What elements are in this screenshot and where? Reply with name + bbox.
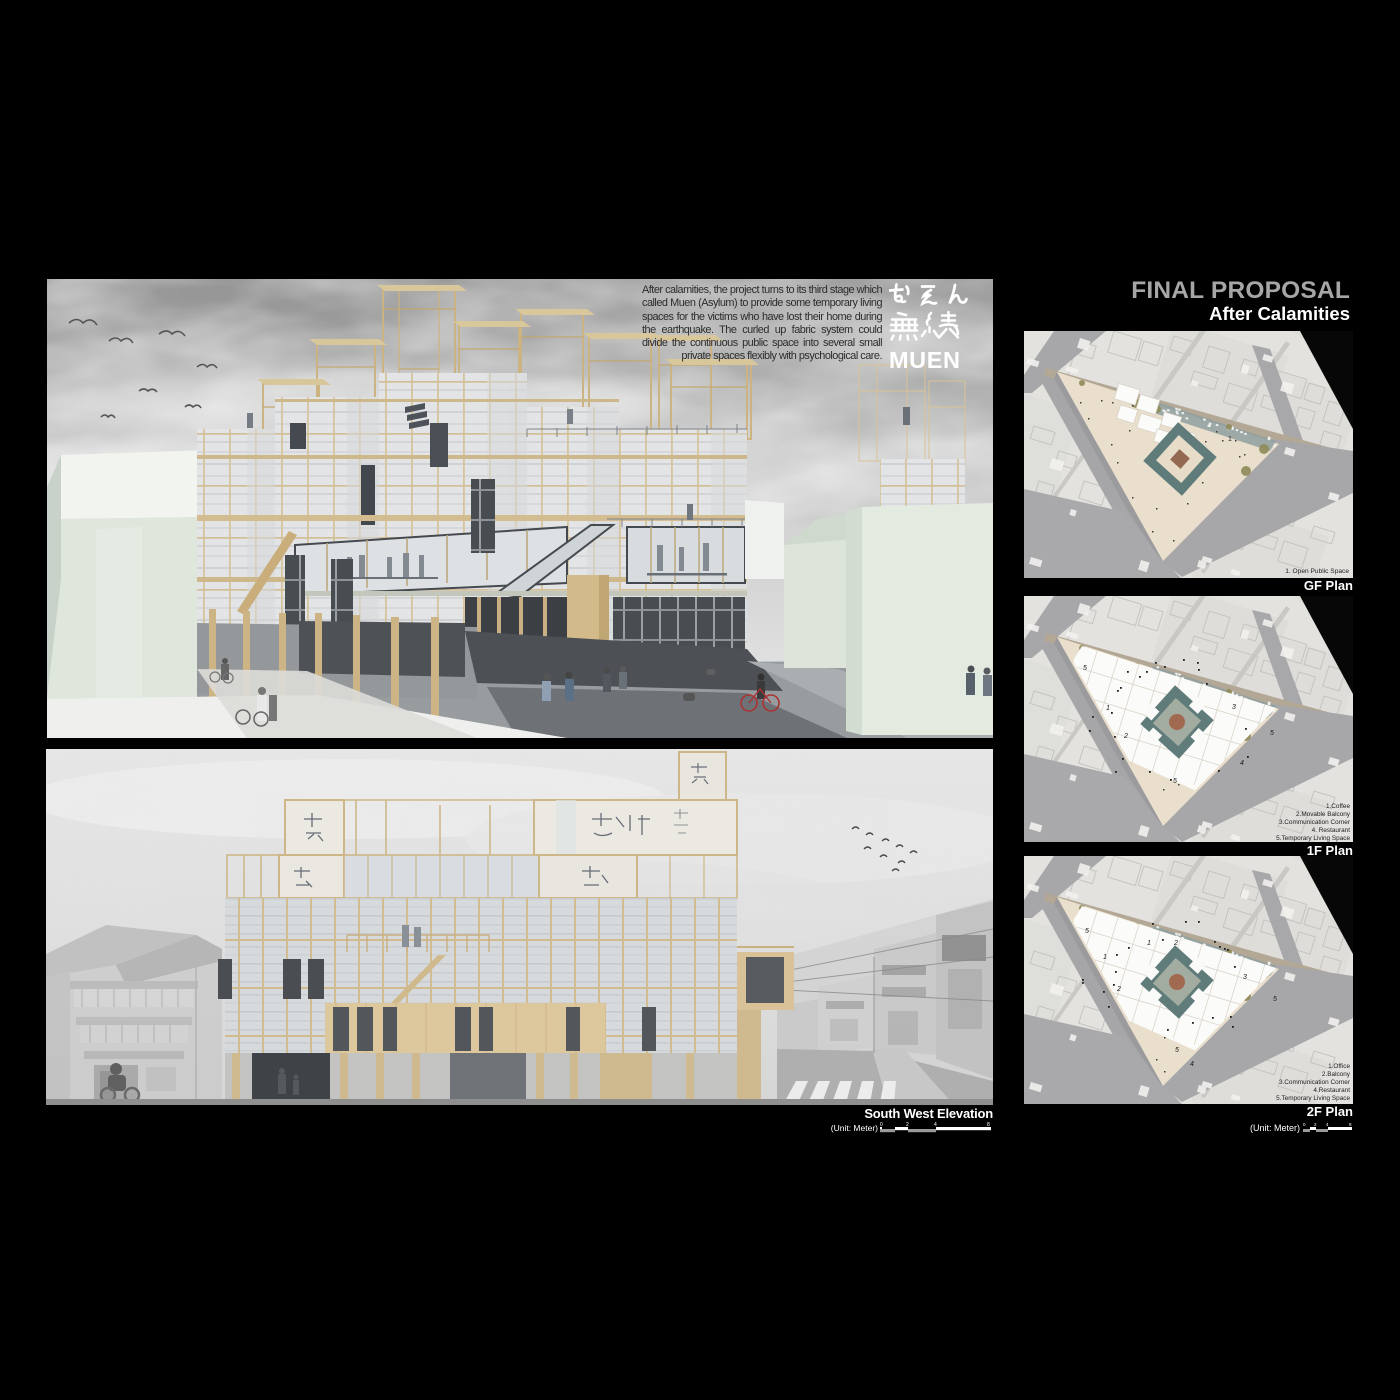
svg-text:3: 3 [1232, 704, 1236, 711]
svg-text:3.Communication Corner: 3.Communication Corner [1279, 1079, 1351, 1086]
svg-text:1: 1 [1103, 954, 1107, 961]
svg-text:5: 5 [1083, 665, 1087, 672]
svg-text:4: 4 [1240, 760, 1244, 767]
svg-text:1.Office: 1.Office [1328, 1063, 1350, 1070]
svg-text:2.Movable Balcony: 2.Movable Balcony [1296, 811, 1351, 818]
svg-text:2: 2 [1314, 1122, 1317, 1127]
svg-text:5: 5 [1173, 778, 1177, 785]
svg-text:4: 4 [1190, 1061, 1194, 1068]
svg-text:5: 5 [1085, 928, 1089, 935]
svg-text:2.Balcony: 2.Balcony [1322, 1071, 1351, 1078]
svg-text:4.Restaurant: 4.Restaurant [1313, 1087, 1350, 1094]
svg-text:5: 5 [1175, 1047, 1179, 1054]
svg-text:1: 1 [1228, 436, 1232, 443]
svg-text:1. Open Public Space: 1. Open Public Space [1285, 568, 1349, 575]
svg-text:4: 4 [1326, 1122, 1329, 1127]
svg-text:3: 3 [1243, 974, 1247, 981]
svg-text:1: 1 [1106, 705, 1110, 712]
svg-text:MUEN: MUEN [889, 347, 961, 372]
svg-text:5: 5 [1273, 996, 1277, 1003]
svg-text:1: 1 [1147, 940, 1151, 947]
svg-text:5.Temporary Living Space: 5.Temporary Living Space [1276, 1095, 1350, 1102]
svg-text:8: 8 [1349, 1122, 1352, 1127]
svg-text:5: 5 [1270, 730, 1274, 737]
svg-text:2: 2 [1116, 986, 1121, 993]
svg-text:3.Communication Corner: 3.Communication Corner [1279, 819, 1351, 826]
svg-text:0: 0 [1303, 1122, 1306, 1127]
svg-text:1.Coffee: 1.Coffee [1326, 803, 1350, 810]
svg-text:5.Temporary Living Space: 5.Temporary Living Space [1276, 835, 1350, 842]
svg-text:4. Restaurant: 4. Restaurant [1312, 827, 1351, 834]
svg-text:2: 2 [1173, 940, 1178, 947]
svg-text:2: 2 [1123, 733, 1128, 740]
